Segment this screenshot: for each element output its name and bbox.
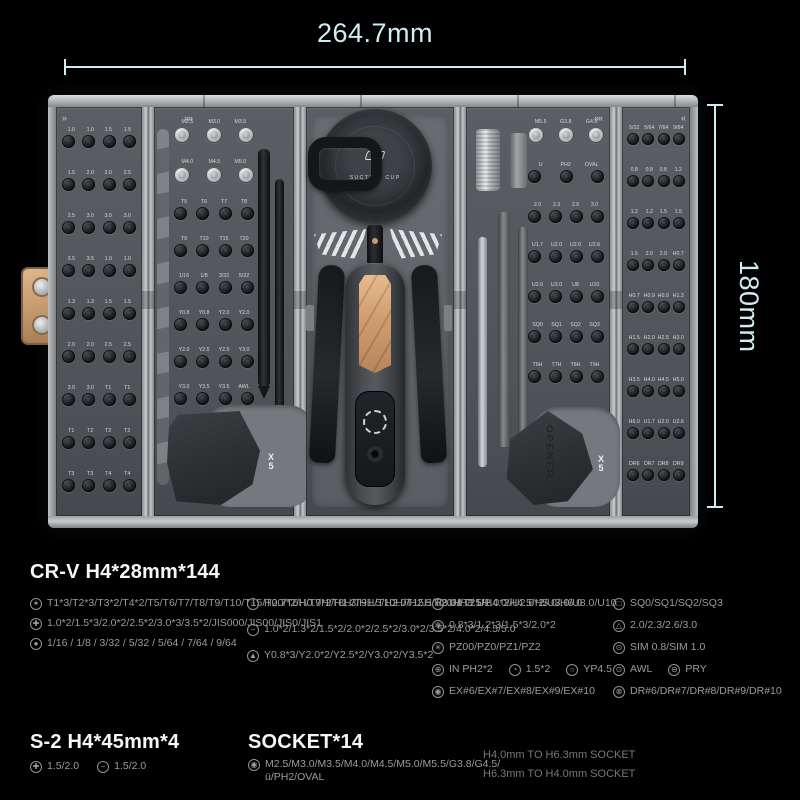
bit-grid-row: H1.5H2.0H2.5H3.0 [627,335,685,355]
bit-size-label: 5/32 [235,273,253,279]
bit-size-label: T1 [119,385,135,391]
bit-size-label: T8H [567,362,584,368]
bit-size-label: Y3.0 [235,347,253,353]
width-dimension-label: 264.7mm [255,18,495,49]
bit-size-label: M3.0 [202,119,225,125]
bit [238,127,254,143]
spec-text: DR#6/DR#7/DR#8/DR#9/DR#10 [630,685,782,698]
bit-size-labels: DR6DR7DR8DR9 [627,461,685,468]
bit [528,290,541,303]
bit-grid-row: U1.7U2.0U2.0U2.6 [528,242,604,263]
bit [82,264,95,277]
bit-size-label: 1.5 [100,127,116,133]
bit-size-label: H0.7 [628,293,641,299]
bit-size-label: 2.3 [548,202,565,208]
bit [123,264,136,277]
bit-size-label: T20 [235,236,253,242]
bit [528,250,541,263]
bit [658,133,670,145]
copper-grip [359,275,391,373]
bit-size-label: 2.5 [119,342,135,348]
spec-text: 1.5/2.0 [114,760,146,773]
bit [560,170,573,183]
bit-grid-row: 3.53.51.01.0 [62,256,136,277]
bit-size-label: 0.8 [657,167,670,173]
bit-size-label: T3 [82,471,98,477]
bit-size-label: 2.0 [63,342,79,348]
bit-row [62,178,136,191]
spec-text: EX#6/EX#7/EX#8/EX#9/EX#10 [449,685,595,698]
bit [570,210,583,223]
bit [103,479,116,492]
bit-row [174,207,254,220]
bit-size-label: M5.0 [229,159,252,165]
bit-size-label: Y2.0 [215,310,233,316]
spec-item: □SQ0/SQ1/SQ2/SQ3 [613,597,795,610]
bit-grid-row: 1.31.31.51.5 [62,299,136,320]
bit-size-label: 2.0 [82,342,98,348]
bit [62,178,75,191]
bit [627,217,639,229]
spec-item: ⊙AWL [613,663,652,676]
spec-text: YP4.5 [583,663,612,676]
bit-size-label: 2.5 [100,342,116,348]
bit-size-label: DR9 [671,461,684,467]
bit-size-labels: 5/325/647/649/64 [627,125,685,132]
bit-size-labels: Y3.0Y3.5Y3.5AWL [174,384,254,391]
spec-column-1: ✶T1*3/T2*3/T3*2/T4*2/T5/T6/T7/T8/T9/T10/… [30,597,244,657]
bit-size-label: 5/32 [628,125,641,131]
bit-grid-row: Y3.0Y3.5Y3.5AWL [174,384,254,405]
bit-size-label: Y2.0 [235,310,253,316]
bit-tray-panel-4: «« M5.5G3.8G4.5ÜPH2OVAL2.02.32.63.0U1.7U… [466,107,610,516]
spec-item: ⊙SIM 0.8/SIM 1.0 [613,641,795,654]
bit-grid-row: U2.6U3.0U8U10 [528,282,604,303]
ph-in-icon: ⊕ [432,664,444,676]
spec-text: 2.0/2.3/2.6/3.0 [630,619,697,632]
bit-grid-row: 2.53.03.03.0 [62,213,136,234]
bit [570,370,583,383]
bit [196,318,209,331]
section-title-crv: CR-V H4*28mm*144 [30,561,220,584]
spec-item: ◔1.5*2 [509,663,551,676]
bit [658,301,670,313]
spec-item: ✶T1*3/T2*3/T3*2/T4*2/T5/T6/T7/T8/T9/T10/… [30,597,244,610]
bit-size-label: 1.2 [628,209,641,215]
bit-size-label: 9/64 [671,125,684,131]
bit [174,392,187,405]
s2-items: ✚1.5/2.0−1.5/2.0 [30,760,230,773]
bit [591,290,604,303]
bit [241,318,254,331]
socket-note-line1: H4.0mm TO H6.3mm SOCKET [483,746,635,765]
bit [174,167,190,183]
bit-row [528,290,604,303]
bit-row [174,392,254,405]
bit-size-label: 3.0 [100,213,116,219]
bit-size-labels: 1.52.02.0H0.7 [627,251,685,258]
bit-grid-row: 1.21.21.51.5 [627,209,685,229]
bit-size-label: H5.0 [671,377,684,383]
bit [103,135,116,148]
bit-size-label: 1.5 [671,209,684,215]
socket-adapter [476,129,500,191]
toolkit-case: » 1.01.01.51.51.52.02.02.52.53.03.03.03.… [48,95,698,528]
external-torx-icon: ◉ [432,686,444,698]
bit-size-label: 1/16 [175,273,193,279]
bit [642,301,654,313]
hex-chuck [367,446,383,462]
spec-column-4: □SQ0/SQ1/SQ2/SQ3△2.0/2.3/2.6/3.0⊙SIM 0.8… [613,597,795,707]
bit-size-label: 3.0 [63,385,79,391]
bit [103,350,116,363]
bit [103,221,116,234]
case-bottom-edge [48,516,698,528]
bit [549,370,562,383]
pick-quantity-label: X5 [266,453,276,471]
bit [528,330,541,343]
bit-grid-row: 1.01.01.51.5 [62,127,136,148]
probe-tool [275,179,284,435]
bit-grid-row: Y2.0Y2.5Y2.5Y3.0 [174,347,254,368]
bit-size-labels: U2.6U3.0U8U10 [528,282,604,289]
bit [570,330,583,343]
bit-size-label: T4 [100,471,116,477]
bit [62,436,75,449]
spec-item: ✳PZ00/PZ0/PZ1/PZ2 [432,641,622,654]
bit-row [627,259,685,271]
bit-size-labels: 1.01.01.51.5 [62,127,136,134]
case-right-edge [690,107,698,516]
yp-icon: ○ [566,664,578,676]
bit [123,221,136,234]
bit-size-label: M5.5 [530,119,552,125]
bit [528,170,541,183]
bit-size-label: H4.5 [657,377,670,383]
bit-grid-row: T6HT7HT8HT9H [528,362,604,383]
bit [658,427,670,439]
spec-item: ○H0.7*2/H0.9*2/H1.3/H1.5/H2.0/H2.5/H3.0/… [247,597,437,610]
height-dimension-label: 180mm [733,260,764,353]
bit [241,355,254,368]
bit [528,127,544,143]
socket-icon: ◉ [248,759,260,771]
bit-size-label: 1.5 [100,299,116,305]
bit-size-labels: 1.21.21.51.5 [627,209,685,216]
bit-grid-row: 1.52.02.0H0.7 [627,251,685,271]
case-body: » 1.01.01.51.51.52.02.02.52.53.03.03.03.… [48,95,698,528]
spec-text: Y0.8*3/Y2.0*2/Y2.5*2/Y3.0*2/Y3.5*2 [264,649,433,662]
bit-row [62,307,136,320]
bit [196,244,209,257]
bit-grid-2: M2.5M3.0M3.5M4.0M4.5M5.0T5T6T7T8T9T10T15… [174,119,254,421]
bit [103,178,116,191]
case-left-edge [48,107,56,516]
bit-row [627,427,685,439]
bit-size-label: H1.5 [628,335,641,341]
bit-size-labels: T5T6T7T8 [174,199,254,206]
driver-shaft [367,225,383,265]
bit-size-labels: 2.53.03.03.0 [62,213,136,220]
bit [82,436,95,449]
bit-size-label: T2 [100,428,116,434]
bit [174,127,190,143]
bit-size-labels: 1.52.02.02.5 [62,170,136,177]
bit-size-label: U3.0 [548,282,565,288]
bit-size-label: H4.0 [642,377,655,383]
pozidriv-icon: ✳ [432,642,444,654]
bit-size-label: OVAL [580,162,602,168]
bit [206,127,222,143]
bit-size-label: 2.5 [63,213,79,219]
bit-size-labels: 2.02.32.63.0 [528,202,604,209]
bit-grid-row: T5T6T7T8 [174,199,254,220]
socket-adapter-note: H4.0mm TO H6.3mm SOCKET H6.3mm TO H4.0mm… [483,746,635,784]
fraction-icon: ● [30,638,42,650]
spec-text: IN PH2*2 [449,663,493,676]
bit-size-label: 1.0 [119,256,135,262]
bit-size-labels: ÜPH2OVAL [528,162,604,169]
bit [62,479,75,492]
spec-inline-group: ⊕IN PH2*2◔1.5*2○YP4.5 [432,663,622,676]
bit-grid-row: T1T2T2T2 [62,428,136,449]
hex-adapter [510,133,527,188]
bit-row [62,135,136,148]
bit [241,207,254,220]
bit [82,479,95,492]
triangle-icon: △ [613,620,625,632]
square-icon: □ [613,598,625,610]
bit [219,392,232,405]
bit-size-label: T7 [215,199,233,205]
bit-size-label: 2.6 [567,202,584,208]
bit-size-label: Y2.5 [195,347,213,353]
bit-size-label: G4.5 [580,119,602,125]
sim-icon: ⊙ [613,642,625,654]
bit-size-label: 0.8 [628,167,641,173]
bit-size-label: H3.5 [628,377,641,383]
bit [558,127,574,143]
u-type-icon: ∪ [432,598,444,610]
bit-size-labels: Y2.0Y2.5Y2.5Y3.0 [174,347,254,354]
bit-row [627,469,685,481]
bit-size-labels: 2.02.02.52.5 [62,342,136,349]
bit-size-label: H0.7 [671,251,684,257]
bit [196,207,209,220]
electric-screwdriver [345,263,405,505]
bit [673,385,685,397]
bit-size-labels: 1.31.31.51.5 [62,299,136,306]
bit [627,175,639,187]
product-spec-image: 264.7mm 180mm » 1.01.01.51.51.52.02.02.5… [0,0,800,800]
bit [642,343,654,355]
tool-clip-left [306,305,314,331]
bit [123,479,136,492]
bit-size-labels: SQ0SQ1SQ2SQ3 [528,322,604,329]
bit-size-label: SQ3 [586,322,603,328]
bit [673,217,685,229]
bit [627,259,639,271]
bit-size-label: T8 [235,199,253,205]
bit [82,350,95,363]
bit-size-label: 1.5 [63,170,79,176]
bit-size-labels: U1.7U2.0U2.0U2.6 [528,242,604,249]
phillips-icon: ✚ [30,761,42,773]
spec-text: M2.5/M3.0/M3.5/M4.0/M4.5/M5.0/M5.5/G3.8/… [265,758,500,784]
bit [219,355,232,368]
bit [549,330,562,343]
bit-size-label: Y2.0 [175,347,193,353]
bit-size-label: H6.0 [628,419,641,425]
bit-size-label: 3.5 [63,256,79,262]
spec-text: 1.5*2 [526,663,551,676]
bit [62,307,75,320]
bit [103,264,116,277]
bit [627,343,639,355]
bit [658,259,670,271]
bit-size-label: 1.3 [82,299,98,305]
bit-size-label: T3 [63,471,79,477]
bit-grid-row: M4.0M4.5M5.0 [174,159,254,183]
bit-size-label: 2.0 [529,202,546,208]
bit [62,393,75,406]
bit-size-label: Ü [530,162,552,168]
width-dimension-tick-left [64,59,66,75]
bit-size-label: 3.0 [82,213,98,219]
bit-size-label: 1.2 [671,167,684,173]
bit-row [174,244,254,257]
bit-row [62,221,136,234]
bit [627,133,639,145]
bit [196,392,209,405]
bit-size-labels: T9T10T15T20 [174,236,254,243]
bit-row [528,250,604,263]
bit-size-label: U8 [567,282,584,288]
bit [241,392,254,405]
bit-size-label: SQ1 [548,322,565,328]
bit-size-label: Y0.8 [175,310,193,316]
bit [241,244,254,257]
spec-item: ✻0.8*3/1.2*3/1.5*3/2.0*2 [432,619,622,632]
bit-size-label: AWL [235,384,253,390]
bit-grid-row: H6.0U1.7U2.0U2.6 [627,419,685,439]
bit [627,385,639,397]
bit [174,355,187,368]
phillips-icon: ✚ [30,618,42,630]
bit-size-label: 3.5 [82,256,98,262]
bit [642,133,654,145]
bit-size-label: SQ0 [529,322,546,328]
bit-size-label: 2.0 [100,170,116,176]
bit-size-label: U2.6 [671,419,684,425]
bit-size-label: T7H [548,362,565,368]
bit-size-labels: 3.03.0T1T1 [62,385,136,392]
spec-item: −1.5/2.0 [97,760,146,773]
bit [588,127,604,143]
spec-item: ∪U1.7/ U2.0*2/U2.6*2/U3.0/U8.0/U10 [432,597,622,610]
height-dimension-tick-bottom [707,506,723,508]
bit [673,301,685,313]
bit [673,133,685,145]
spec-item: ▲Y0.8*3/Y2.0*2/Y2.5*2/Y3.0*2/Y3.5*2 [247,649,437,662]
bit-size-label: M3.5 [229,119,252,125]
bit-grid-row: 1/161/83/325/32 [174,273,254,294]
slotted-icon: − [247,624,259,636]
bit [123,350,136,363]
bit-size-label: M2.5 [176,119,199,125]
bit-size-label: T10 [195,236,213,242]
bit-grid-row: Y0.8Y0.8Y2.0Y2.0 [174,310,254,331]
bit [219,318,232,331]
bit-size-labels: T3T3T4T4 [62,471,136,478]
bit [591,170,604,183]
bit-size-labels: T6HT7HT8HT9H [528,362,604,369]
rotation-dial-icon [363,410,387,434]
bit [658,385,670,397]
bit-size-label: T2 [82,428,98,434]
bit [642,259,654,271]
bit [591,330,604,343]
bit-size-label: 1.5 [657,209,670,215]
bit-size-label: U10 [586,282,603,288]
spec-item: −1.0*2/1.3*2/1.5*2/2.0*2/2.5*2/3.0*2/3.5… [247,623,437,636]
socket-items: ◉M2.5/M3.0/M3.5/M4.0/M4.5/M5.0/M5.5/G3.8… [248,758,468,791]
panel-mark: « [681,113,685,123]
bit [549,210,562,223]
bit-size-labels: H6.0U1.7U2.0U2.6 [627,419,685,426]
bit-size-label: 3.0 [82,385,98,391]
bit-grid-row: 0.80.80.81.2 [627,167,685,187]
spec-item: ⊕IN PH2*2 [432,663,493,676]
bit [658,343,670,355]
width-dimension-tick-right [684,59,686,75]
spec-item: ⊖PRY [668,663,706,676]
bit-size-label: T6 [195,199,213,205]
bit-size-labels: M4.0M4.5M5.0 [174,159,254,166]
bit-size-label: U2.6 [586,242,603,248]
bit-row [62,479,136,492]
bit-row [174,281,254,294]
bit [82,178,95,191]
bit-size-labels: 3.53.51.01.0 [62,256,136,263]
bit-row [627,343,685,355]
bit-size-labels: H0.7H0.9H0.9H1.3 [627,293,685,300]
bit [103,307,116,320]
bit-row [62,350,136,363]
bit-size-label: Y3.5 [195,384,213,390]
spec-text: SIM 0.8/SIM 1.0 [630,641,705,654]
bit-size-label: DR7 [642,461,655,467]
bit-size-labels: Y0.8Y0.8Y2.0Y2.0 [174,310,254,317]
bit-grid-row: 2.02.02.52.5 [62,342,136,363]
spec-text: AWL [630,663,652,676]
bit-size-label: U1.7 [529,242,546,248]
bit [627,301,639,313]
bit [673,343,685,355]
bit [123,393,136,406]
bit-size-label: T6H [529,362,546,368]
bit-row [528,170,604,183]
bit [642,217,654,229]
awl-icon: ⊙ [613,664,625,676]
pick-quantity-label: X5 [596,455,606,473]
driver-panel: SUCTION CUP [306,107,454,516]
bit [642,175,654,187]
bit-size-label: T2 [119,428,135,434]
bit-row [174,167,254,183]
bit [570,290,583,303]
spec-item: ◉M2.5/M3.0/M3.5/M4.0/M4.5/M5.0/M5.5/G3.8… [248,758,468,784]
